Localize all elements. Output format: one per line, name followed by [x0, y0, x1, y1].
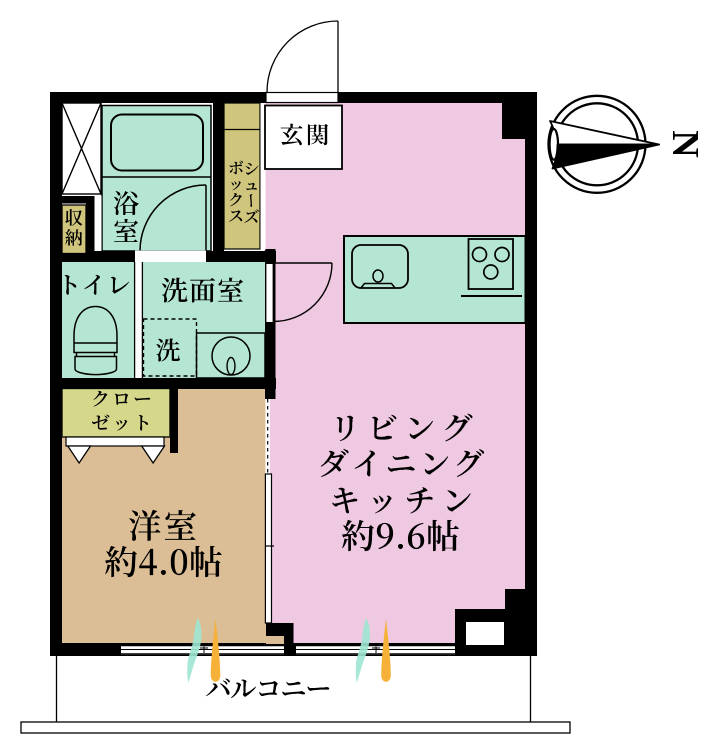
svg-text:N: N	[664, 130, 706, 157]
